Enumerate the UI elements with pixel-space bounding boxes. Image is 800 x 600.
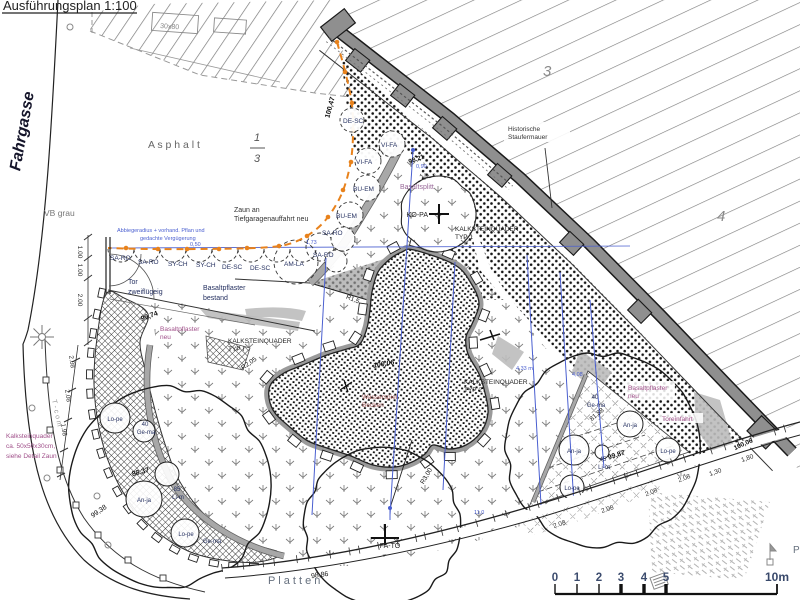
svg-text:SA-RO: SA-RO xyxy=(322,230,343,237)
svg-text:FA-TO: FA-TO xyxy=(380,543,401,550)
svg-text:4,08: 4,08 xyxy=(572,372,583,378)
svg-text:Lo-pe: Lo-pe xyxy=(178,532,194,538)
svg-text:Staufermauer: Staufermauer xyxy=(508,134,548,141)
svg-text:Kalksteinquader: Kalksteinquader xyxy=(6,433,53,440)
svg-text:Tor: Tor xyxy=(128,279,138,286)
svg-text:SA-RO: SA-RO xyxy=(313,252,334,259)
svg-text:Basaltpflaster: Basaltpflaster xyxy=(628,385,668,392)
svg-text:TYP 2: TYP 2 xyxy=(464,387,482,394)
svg-text:An-ja: An-ja xyxy=(623,423,638,429)
svg-text:11,0: 11,0 xyxy=(474,510,484,516)
svg-text:SA-RO: SA-RO xyxy=(138,259,159,266)
svg-text:Toreinfahrt: Toreinfahrt xyxy=(662,416,693,423)
svg-text:BU-EM: BU-EM xyxy=(336,213,357,220)
svg-text:45: 45 xyxy=(600,457,607,463)
svg-text:0,50: 0,50 xyxy=(190,242,201,248)
svg-text:Basaltpflaster: Basaltpflaster xyxy=(203,285,246,292)
svg-text:Ge-ma: Ge-ma xyxy=(137,430,156,436)
svg-text:3: 3 xyxy=(254,153,261,165)
svg-text:4: 4 xyxy=(717,208,725,225)
svg-text:1.00: 1.00 xyxy=(76,246,83,259)
svg-text:TYP I: TYP I xyxy=(228,346,244,353)
svg-text:An-ja: An-ja xyxy=(137,498,152,504)
svg-text:gedachte Vergügerung: gedachte Vergügerung xyxy=(140,236,196,242)
svg-text:4,33 m: 4,33 m xyxy=(516,366,533,372)
svg-text:40: 40 xyxy=(142,422,149,428)
svg-text:4: 4 xyxy=(641,572,648,584)
svg-text:KALKSTEINQUADER: KALKSTEINQUADER xyxy=(464,379,528,386)
svg-text:neu: neu xyxy=(628,393,639,400)
svg-text:Li-m: Li-m xyxy=(598,465,610,471)
svg-text:KALKSTEINQUADER: KALKSTEINQUADER xyxy=(455,226,519,233)
svg-text:1.00: 1.00 xyxy=(76,264,83,277)
svg-text:AM-LA: AM-LA xyxy=(284,261,305,268)
svg-text:85: 85 xyxy=(174,487,181,493)
svg-text:SA-RO: SA-RO xyxy=(110,255,131,262)
svg-text:P: P xyxy=(793,545,800,556)
svg-text:30x80: 30x80 xyxy=(160,23,180,31)
svg-text:zweiflügeig: zweiflügeig xyxy=(128,289,163,296)
svg-text:siehe Detail Zaun: siehe Detail Zaun xyxy=(6,453,57,460)
svg-text:0: 0 xyxy=(552,572,558,584)
svg-text:VB grau: VB grau xyxy=(44,208,75,218)
svg-text:0,90: 0,90 xyxy=(416,164,427,170)
svg-text:3: 3 xyxy=(543,63,552,80)
svg-text:ca. 50x50x30cm,: ca. 50x50x30cm, xyxy=(6,443,55,450)
svg-text:neu: neu xyxy=(160,334,171,341)
svg-text:Historische: Historische xyxy=(508,126,541,133)
svg-text:Becken: Becken xyxy=(362,402,384,409)
svg-text:1: 1 xyxy=(254,132,260,144)
svg-text:VI-FA: VI-FA xyxy=(381,142,398,149)
svg-text:40: 40 xyxy=(592,395,599,401)
svg-text:3: 3 xyxy=(618,572,624,584)
svg-text:Ge-ma: Ge-ma xyxy=(587,403,606,409)
svg-text:Lo-pe: Lo-pe xyxy=(564,486,580,492)
svg-text:An-ja: An-ja xyxy=(567,449,582,455)
svg-text:Basaltpflaster: Basaltpflaster xyxy=(160,326,200,333)
svg-text:Ausführungsplan 1:100: Ausführungsplan 1:100 xyxy=(3,0,137,13)
svg-text:VI-FA: VI-FA xyxy=(356,159,373,166)
svg-text:A s p h a l t: A s p h a l t xyxy=(148,139,200,151)
svg-text:2: 2 xyxy=(596,572,602,584)
svg-text:Zaun an: Zaun an xyxy=(234,207,260,214)
svg-text:Lo-pe: Lo-pe xyxy=(107,417,123,423)
svg-text:Abbiegeradius + vorhand. Pflan: Abbiegeradius + vorhand. Pflan und xyxy=(117,228,205,234)
svg-text:Wasserspiel: Wasserspiel xyxy=(362,394,398,401)
svg-text:2.00: 2.00 xyxy=(76,294,83,307)
svg-text:KALKSTEINQUADER: KALKSTEINQUADER xyxy=(228,338,292,345)
svg-text:TYP 1: TYP 1 xyxy=(455,234,473,241)
svg-text:Basaltsplitt: Basaltsplitt xyxy=(400,184,434,191)
svg-text:bestand: bestand xyxy=(203,295,228,302)
svg-text:DE-SC: DE-SC xyxy=(343,118,364,125)
svg-text:Ge-ma: Ge-ma xyxy=(203,539,222,545)
svg-text:Li-m: Li-m xyxy=(172,495,184,501)
svg-text:KO-PA: KO-PA xyxy=(407,212,429,219)
svg-text:10m: 10m xyxy=(765,570,789,584)
svg-text:DE-SC: DE-SC xyxy=(222,264,243,271)
svg-text:SY-CH: SY-CH xyxy=(196,262,216,269)
svg-text:BU-EM: BU-EM xyxy=(353,186,374,193)
svg-text:1,73: 1,73 xyxy=(306,240,317,246)
svg-text:Lo-pe: Lo-pe xyxy=(660,449,676,455)
svg-text:5: 5 xyxy=(663,572,670,584)
svg-text:Tiefgaragenauffahrt neu: Tiefgaragenauffahrt neu xyxy=(234,216,308,223)
svg-text:1: 1 xyxy=(574,572,581,584)
svg-text:DE-SC: DE-SC xyxy=(250,265,271,272)
svg-text:SY-CH: SY-CH xyxy=(168,261,188,268)
